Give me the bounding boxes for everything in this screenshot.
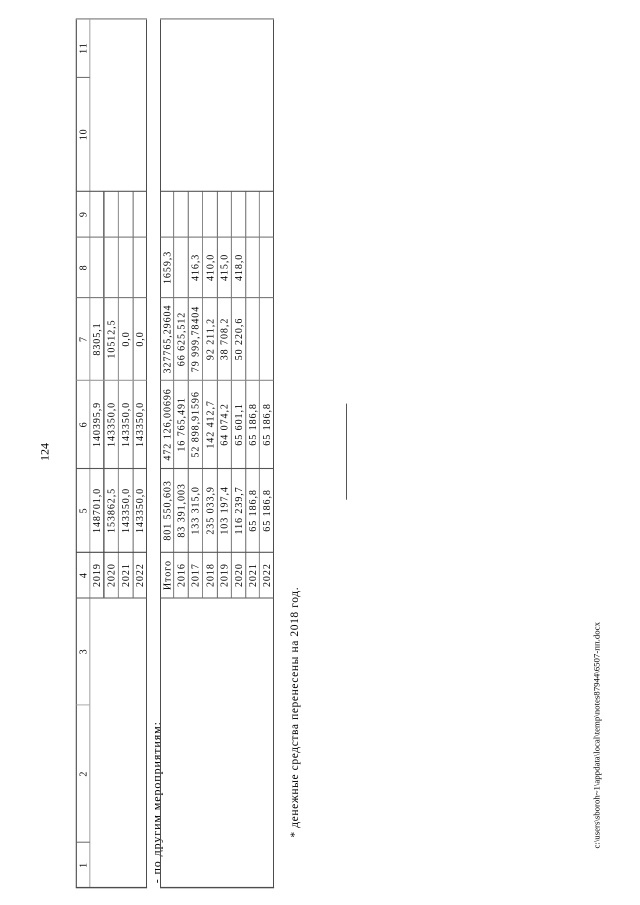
svg-text:2: 2 [78, 771, 89, 777]
svg-text:* денежные средства перенесены: * денежные средства перенесены на 2018 г… [289, 587, 301, 838]
svg-text:2021: 2021 [121, 563, 132, 587]
svg-text:16 765,491: 16 765,491 [176, 397, 187, 452]
svg-text:1659,3: 1659,3 [162, 251, 173, 284]
svg-text:7: 7 [78, 336, 89, 342]
svg-text:103 197,4: 103 197,4 [220, 486, 231, 535]
svg-text:2022: 2022 [135, 563, 146, 587]
svg-text:2020: 2020 [107, 563, 118, 587]
svg-text:148701,0: 148701,0 [92, 488, 103, 533]
svg-text:2019: 2019 [92, 563, 103, 587]
svg-text:64 074,2: 64 074,2 [220, 403, 231, 446]
svg-text:0,0: 0,0 [121, 331, 132, 346]
svg-text:83 391,003: 83 391,003 [176, 483, 187, 538]
svg-text:92 211,2: 92 211,2 [205, 318, 216, 360]
svg-text:142 412,7: 142 412,7 [205, 400, 216, 449]
svg-text:38 708,2: 38 708,2 [220, 318, 231, 361]
svg-text:5: 5 [78, 507, 89, 513]
svg-text:143350,0: 143350,0 [135, 488, 146, 533]
svg-text:416,3: 416,3 [191, 254, 202, 281]
svg-text:116 239,7: 116 239,7 [234, 486, 245, 534]
svg-text:133 315,0: 133 315,0 [191, 486, 202, 535]
svg-text:79 999,78404: 79 999,78404 [191, 306, 202, 372]
svg-text:65 186,8: 65 186,8 [262, 403, 273, 446]
svg-text:8305,1: 8305,1 [92, 322, 103, 355]
svg-text:10512,5: 10512,5 [107, 319, 118, 358]
svg-text:Итого: Итого [162, 560, 173, 590]
svg-text:327765,29604: 327765,29604 [162, 305, 173, 374]
svg-text:10: 10 [78, 128, 89, 140]
svg-text:c:\users\sboroh~1\appdata\loca: c:\users\sboroh~1\appdata\local\temp\not… [592, 621, 602, 848]
svg-text:124: 124 [38, 443, 52, 461]
svg-text:50 220,6: 50 220,6 [234, 318, 245, 361]
svg-text:8: 8 [78, 264, 89, 270]
svg-text:66 625,512: 66 625,512 [176, 312, 187, 367]
svg-text:2017: 2017 [191, 563, 202, 587]
svg-text:0,0: 0,0 [135, 331, 146, 346]
svg-text:65 186,8: 65 186,8 [248, 403, 259, 446]
svg-text:140395,9: 140395,9 [92, 402, 103, 447]
svg-text:65 186,8: 65 186,8 [262, 489, 273, 532]
svg-text:2020: 2020 [234, 563, 245, 587]
svg-text:472 126,00696: 472 126,00696 [162, 388, 173, 460]
svg-text:415,0: 415,0 [220, 254, 231, 281]
svg-text:2022: 2022 [262, 563, 273, 587]
svg-text:2018: 2018 [205, 563, 216, 587]
svg-text:9: 9 [78, 211, 89, 217]
svg-text:410,0: 410,0 [205, 254, 216, 281]
svg-text:11: 11 [78, 42, 89, 54]
svg-text:418,0: 418,0 [234, 254, 245, 281]
svg-text:235 033,9: 235 033,9 [205, 486, 216, 535]
svg-text:143350,0: 143350,0 [135, 402, 146, 447]
svg-text:6: 6 [78, 421, 89, 427]
svg-text:143350,0: 143350,0 [107, 402, 118, 447]
svg-text:1: 1 [78, 862, 89, 868]
svg-text:65 186,8: 65 186,8 [248, 489, 259, 532]
svg-text:143350,0: 143350,0 [121, 402, 132, 447]
svg-text:3: 3 [78, 648, 89, 654]
svg-text:801 550,603: 801 550,603 [162, 480, 173, 540]
svg-text:- по другим мероприятиям:: - по другим мероприятиям: [149, 721, 163, 883]
svg-text:153862,5: 153862,5 [107, 488, 118, 533]
svg-text:2019: 2019 [220, 563, 231, 587]
svg-text:52 898,91596: 52 898,91596 [191, 391, 202, 457]
svg-text:4: 4 [78, 572, 89, 578]
svg-text:143350,0: 143350,0 [121, 488, 132, 533]
svg-text:2021: 2021 [248, 563, 259, 587]
svg-text:65 601,1: 65 601,1 [234, 403, 245, 446]
svg-text:2016: 2016 [176, 563, 187, 587]
